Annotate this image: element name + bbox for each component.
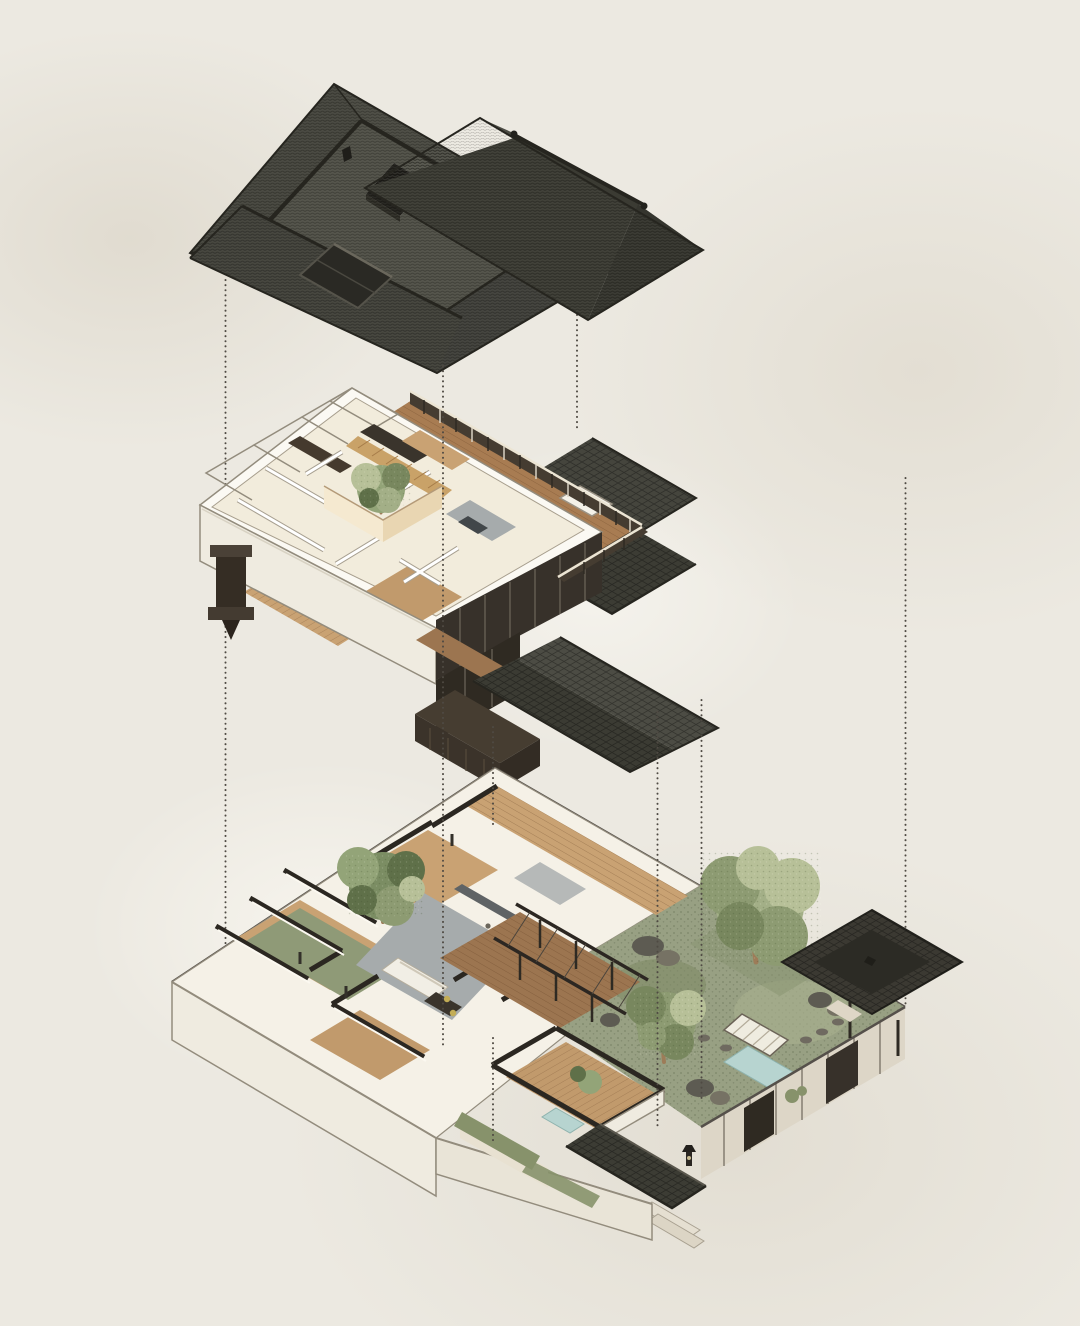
roof-layer — [190, 84, 703, 373]
cushion — [444, 996, 450, 1002]
ridge-upturn — [511, 131, 518, 138]
garden-tree-small — [626, 986, 706, 1062]
chair — [485, 923, 490, 928]
pine-tree — [337, 847, 425, 926]
upper-floor-layer — [200, 388, 718, 790]
ridge-upturn — [641, 203, 648, 210]
ground-floor-layer — [172, 768, 962, 1248]
illustration-page — [0, 0, 1080, 1326]
stone-lantern — [682, 1145, 696, 1166]
cushion — [450, 1010, 456, 1016]
exploded-axonometric-illustration — [0, 0, 1080, 1326]
